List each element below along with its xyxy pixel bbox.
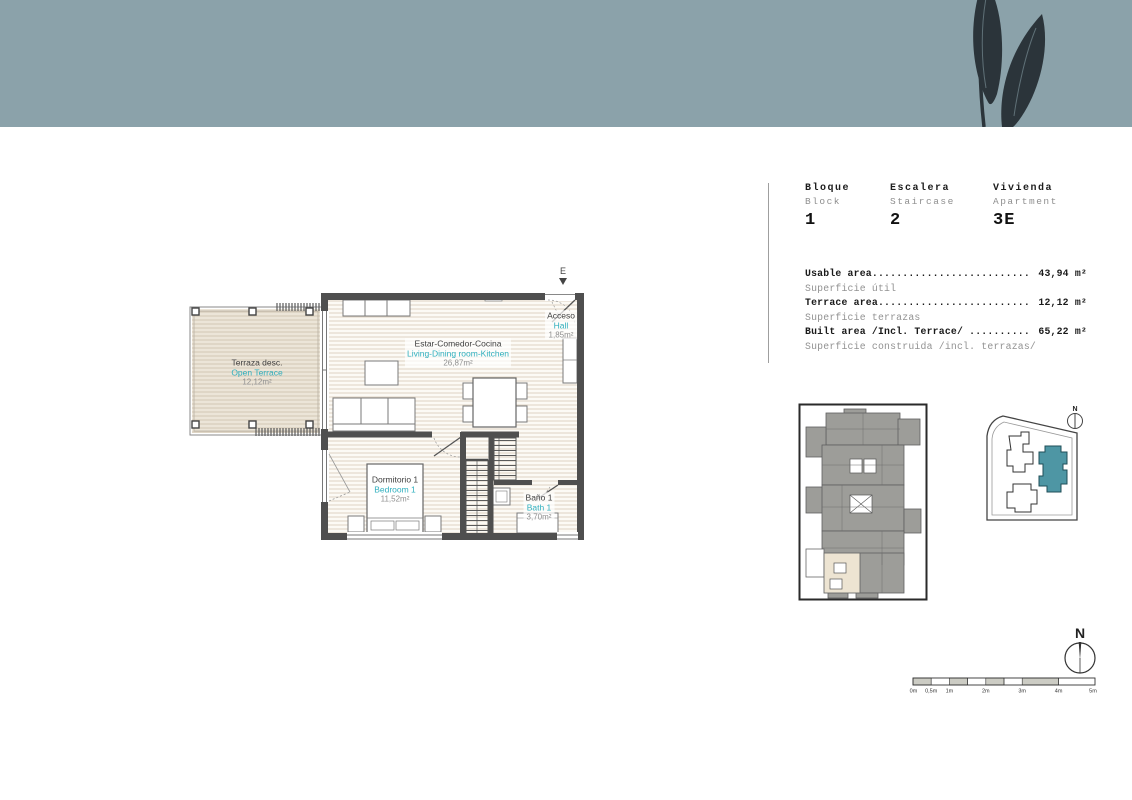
room-label-bedroom: Dormitorio 1 Bedroom 1 11,52m² <box>370 474 420 503</box>
coffee-table <box>365 361 398 385</box>
unit-header: Bloque Block 1 Escalera Staircase 2 Vivi… <box>805 183 1083 230</box>
header-col-block: Bloque Block 1 <box>805 183 890 230</box>
kitchen-counter <box>343 300 410 316</box>
entrance-marker: E <box>559 266 567 285</box>
room-label-bath: Baño 1 Bath 1 3,70m² <box>524 492 555 521</box>
nightstand <box>425 516 441 532</box>
scale-label: 4m <box>1055 689 1063 695</box>
scale-label: 1m <box>946 689 954 695</box>
compass-north-label: N <box>1075 625 1085 641</box>
compass-needle-icon <box>1079 642 1082 660</box>
site-plan-map: N <box>977 402 1089 537</box>
scale-label: 0m <box>910 689 918 695</box>
entrance-letter: E <box>560 266 566 276</box>
room-label-hall: Acceso Hall 1,85m² <box>545 310 577 339</box>
entrance-arrow-icon <box>559 278 567 285</box>
scale-label: 5m <box>1089 689 1097 695</box>
area-table: Usable area ............................… <box>805 267 1087 354</box>
scale-label: 3m <box>1018 689 1026 695</box>
key-plan-map <box>798 403 928 606</box>
area-row-usable: Usable area ............................… <box>805 267 1087 282</box>
room-label-living: Estar-Comedor-Cocina Living-Dining room-… <box>405 338 511 367</box>
room-label-terrace: Terraza desc. Open Terrace 12,12m² <box>229 357 284 386</box>
dining-table <box>473 378 516 427</box>
area-row-terrace: Terrace area ...........................… <box>805 296 1087 311</box>
header-col-staircase: Escalera Staircase 2 <box>890 183 993 230</box>
brochure-page: E Terraza desc. Open Terrace 12,12m² Est… <box>0 0 1132 800</box>
leaf-illustration <box>930 0 1100 127</box>
svg-text:N: N <box>1072 406 1077 413</box>
header-col-apartment: Vivienda Apartment 3E <box>993 183 1083 230</box>
block-value: 1 <box>805 211 890 230</box>
hall-cabinet <box>563 338 577 383</box>
nightstand <box>348 516 364 532</box>
scale-bar: 0m 0,5m 1m 2m 3m 4m 5m <box>903 674 1103 703</box>
scale-label: 0,5m <box>925 689 938 695</box>
staircase-value: 2 <box>890 211 993 230</box>
site-compass: N <box>1068 406 1083 429</box>
keyplan-terrace <box>806 549 824 577</box>
floor-plan: E Terraza desc. Open Terrace 12,12m² Est… <box>180 258 600 558</box>
header-divider <box>768 183 769 363</box>
area-row-built: Built area /Incl. Terrace/ .............… <box>805 325 1087 340</box>
apartment-value: 3E <box>993 211 1083 230</box>
scale-label: 2m <box>982 689 990 695</box>
sofa <box>333 398 415 431</box>
top-banner <box>0 0 1132 127</box>
